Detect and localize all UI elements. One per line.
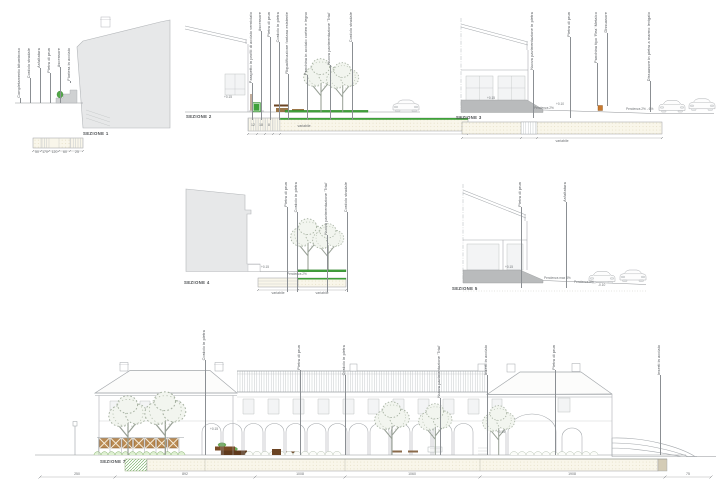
slope-annotation: Pendenza 2% - 6% <box>626 107 653 111</box>
leader-label: Dissuasore <box>604 12 611 106</box>
leader-line <box>570 37 571 118</box>
s7-dimension-line <box>39 476 713 479</box>
leader-label-text: Pietra di prun <box>568 12 572 37</box>
leader-label: Nuova pavimentazione 'Trial' <box>327 12 334 120</box>
dim-span: variabile <box>555 139 568 143</box>
dim-value: 75 <box>686 472 690 476</box>
leader-label: Asfaltatura <box>563 182 570 288</box>
s3-pavement-detail <box>461 122 663 139</box>
spot-elevation: +0.15 <box>497 430 505 434</box>
section-title-4: SEZIONE 4 <box>184 280 210 285</box>
leader-line <box>20 98 21 103</box>
section-title-5: SEZIONE 5 <box>452 286 478 291</box>
slope-annotation: Pendenza 2% <box>534 106 554 110</box>
dim-span: variabile <box>271 291 284 295</box>
leader-line <box>297 212 298 292</box>
leader-label-text: Pietra di prun <box>48 48 52 73</box>
leader-line <box>40 68 41 103</box>
leader-label: Dissuasore in pietra a marmo levigato <box>647 12 654 112</box>
s4-building-mass <box>186 189 260 272</box>
leader-line <box>252 83 253 120</box>
s3-car <box>689 99 715 111</box>
s4-pavement-detail <box>257 278 347 291</box>
s5-ramp <box>463 270 543 283</box>
leader-label: Pietra di prun <box>297 345 304 455</box>
spot-elevation: +0.15 <box>505 265 513 269</box>
leader-line <box>288 74 289 120</box>
leader-label: Panchina tipo 'Rea' Metalco <box>594 12 601 106</box>
leader-line <box>347 212 348 292</box>
spot-elevation: +0.15 <box>210 427 218 431</box>
leader-label: Pietra di prun <box>552 345 559 455</box>
dim-value: 1060 <box>408 472 416 476</box>
sezione-1-drawing <box>0 10 170 160</box>
spot-elevation: +0.15 <box>487 96 495 100</box>
leader-label: Nuova pavimentazione 'Trial' <box>324 182 331 292</box>
leader-label-text: Completamento bituminoso <box>18 48 22 98</box>
s7-pavement-detail <box>125 459 667 471</box>
dim-value: 1008 <box>296 472 304 476</box>
leader-label-text: Pietra di prun <box>298 345 302 370</box>
leader-line <box>345 375 346 455</box>
dim-value: 12 <box>251 123 255 127</box>
slope-annotation: Pendenza 2% <box>574 280 594 284</box>
leader-label-text: Cordolo in pietra <box>277 12 281 42</box>
leader-label: Pietra di prun <box>47 48 54 103</box>
leader-label-text: Dissuasore <box>605 12 609 33</box>
sezione-7-drawing <box>30 325 720 493</box>
leader-line <box>607 33 608 107</box>
leader-label-text: Fioriera in acciaio <box>68 48 72 81</box>
s1-building <box>77 17 170 128</box>
leader-label: Completamento bituminoso <box>17 48 24 103</box>
leader-label-text: Cordolo in pietra <box>203 330 207 360</box>
leader-label-text: Cordolo stradale <box>28 48 32 78</box>
section-title-3: SEZIONE 3 <box>456 115 482 120</box>
leader-label-text: Cordolo in pietra <box>295 182 299 212</box>
leader-line <box>555 370 556 455</box>
spot-elevation: +0.15 <box>261 265 269 269</box>
leader-label: Cordolo in pietra <box>202 330 209 455</box>
dim-value: 8 <box>268 123 270 127</box>
leader-label: Parapetto in profili di acciaio vernicia… <box>249 12 256 120</box>
leader-label: Pietra di prun <box>567 12 574 118</box>
s7-lamppost <box>73 422 77 456</box>
leader-label-text: Pietra di prun <box>268 12 272 37</box>
dim-value: 18 <box>259 123 263 127</box>
leader-line <box>597 63 598 106</box>
leader-label-text: Riqualificazione fontana esistente <box>286 12 290 74</box>
leader-label-text: Asfaltatura <box>564 182 568 202</box>
leader-label: Cordolo stradale <box>344 182 351 292</box>
leader-line <box>660 375 661 455</box>
sezione-5-drawing <box>450 178 650 303</box>
leader-label: Nuova pavimentazione in pietra <box>530 12 537 118</box>
dim-value: 892 <box>182 472 188 476</box>
leader-line <box>327 235 328 292</box>
leader-label-text: Inserti in acciaio <box>658 345 662 375</box>
architectural-sheet: Completamento bituminoso Cordolo stradal… <box>0 0 720 496</box>
s3-building <box>461 24 528 101</box>
leader-line <box>533 70 534 118</box>
leader-label-text: Dissuasore in pietra a marmo levigato <box>648 12 652 81</box>
leader-label: Pietra di prun <box>267 12 274 120</box>
leader-label-text: Pietra di prun <box>285 182 289 207</box>
leader-label-text: Asfaltatura <box>38 48 42 68</box>
leader-label: Ascensore <box>57 48 64 103</box>
leader-line <box>205 360 206 455</box>
sezione-3-drawing <box>455 10 720 145</box>
leader-label: Inserti in acciaio <box>657 345 664 455</box>
dim-value: 250 <box>74 472 80 476</box>
leader-line <box>300 370 301 455</box>
leader-label: Pietra di prun <box>518 182 525 288</box>
slope-annotation: Pendenza 2% <box>287 272 307 276</box>
leader-label-text: Nuova pavimentazione 'Trial' <box>328 12 332 65</box>
dim-value: 1908 <box>568 472 576 476</box>
dim-value: 170 <box>42 150 48 154</box>
s7-greenhouse <box>612 438 697 457</box>
section-title-7: SEZIONE 7 <box>100 459 126 464</box>
leader-label: Asfaltatura <box>37 48 44 103</box>
leader-line <box>50 73 51 103</box>
s2-building <box>185 26 248 112</box>
spot-elevation: +0.15 <box>224 95 232 99</box>
dim-span: variabile <box>297 124 310 128</box>
leader-label-text: Inserti in acciaio <box>485 345 489 375</box>
leader-label-text: Ascensore <box>259 12 263 31</box>
s3-bollard <box>598 106 603 111</box>
s2-car <box>393 100 419 112</box>
leader-line <box>70 81 71 83</box>
leader-line <box>521 207 522 288</box>
leader-line <box>279 42 280 120</box>
leader-label-text: Cordolo in pietra <box>343 345 347 375</box>
leader-line <box>270 37 271 120</box>
leader-label: Inserti in acciaio <box>484 345 491 455</box>
leader-label-text: Panchina tipo 'Rea' Metalco <box>595 12 599 63</box>
leader-label-text: Ascensore <box>58 48 62 67</box>
leader-label-text: Cordolo stradale <box>350 12 354 42</box>
leader-label-text: Nuova pavimentazione 'Trial' <box>438 345 442 398</box>
s2-pavement-detail <box>247 118 469 135</box>
leader-label: Ascensore <box>258 12 265 120</box>
leader-label-text: Nuova pavimentazione in pietra <box>531 12 535 70</box>
leader-label-text: Nuova pavimentazione 'Trial' <box>325 182 329 235</box>
leader-label-text: Cordolo stradale <box>345 182 349 212</box>
leader-label: Cordolo stradale <box>27 48 34 103</box>
leader-label: Cordolo stradale <box>349 12 356 120</box>
leader-label: Riqualificazione fontana esistente <box>285 12 292 120</box>
leader-label: Nuova pavimentazione 'Trial' <box>437 345 444 455</box>
spot-elevation: +0.10 <box>556 102 564 106</box>
leader-label: Panchina in acciaio corten e legno <box>304 12 311 120</box>
s4-step <box>248 265 260 272</box>
s7-hedge <box>94 452 185 455</box>
leader-line <box>352 42 353 120</box>
leader-label-text: Pietra di prun <box>519 182 523 207</box>
section-title-1: SEZIONE 1 <box>83 131 109 136</box>
leader-label-text: Parapetto in profili di acciaio vernicia… <box>250 12 254 83</box>
dim-value: 120 <box>52 150 58 154</box>
leader-label: Cordolo in pietra <box>342 345 349 455</box>
spot-elevation: -0.10 <box>598 283 605 287</box>
leader-label-text: Pietra di prun <box>553 345 557 370</box>
leader-line <box>261 31 262 120</box>
leader-line <box>307 75 308 120</box>
s7-dark-planter <box>272 449 281 455</box>
dim-value: 50 <box>35 150 39 154</box>
leader-line <box>30 78 31 103</box>
dim-value: 60 <box>63 150 67 154</box>
leader-line <box>487 375 488 455</box>
slope-annotation: Pendenza max 8% <box>544 276 571 280</box>
leader-label: Fioriera in acciaio <box>67 48 74 82</box>
section-title-2: SEZIONE 2 <box>186 114 212 119</box>
leader-line <box>287 207 288 292</box>
leader-line <box>440 398 441 455</box>
leader-label-text: Panchina in acciaio corten e legno <box>305 12 309 75</box>
leader-label: Cordolo in pietra <box>276 12 283 120</box>
s5-car <box>620 270 646 282</box>
leader-line <box>330 65 331 120</box>
dim-span: variabile <box>315 291 328 295</box>
leader-line <box>60 67 61 103</box>
s3-car <box>659 101 685 113</box>
dim-value: 25 <box>75 150 79 154</box>
